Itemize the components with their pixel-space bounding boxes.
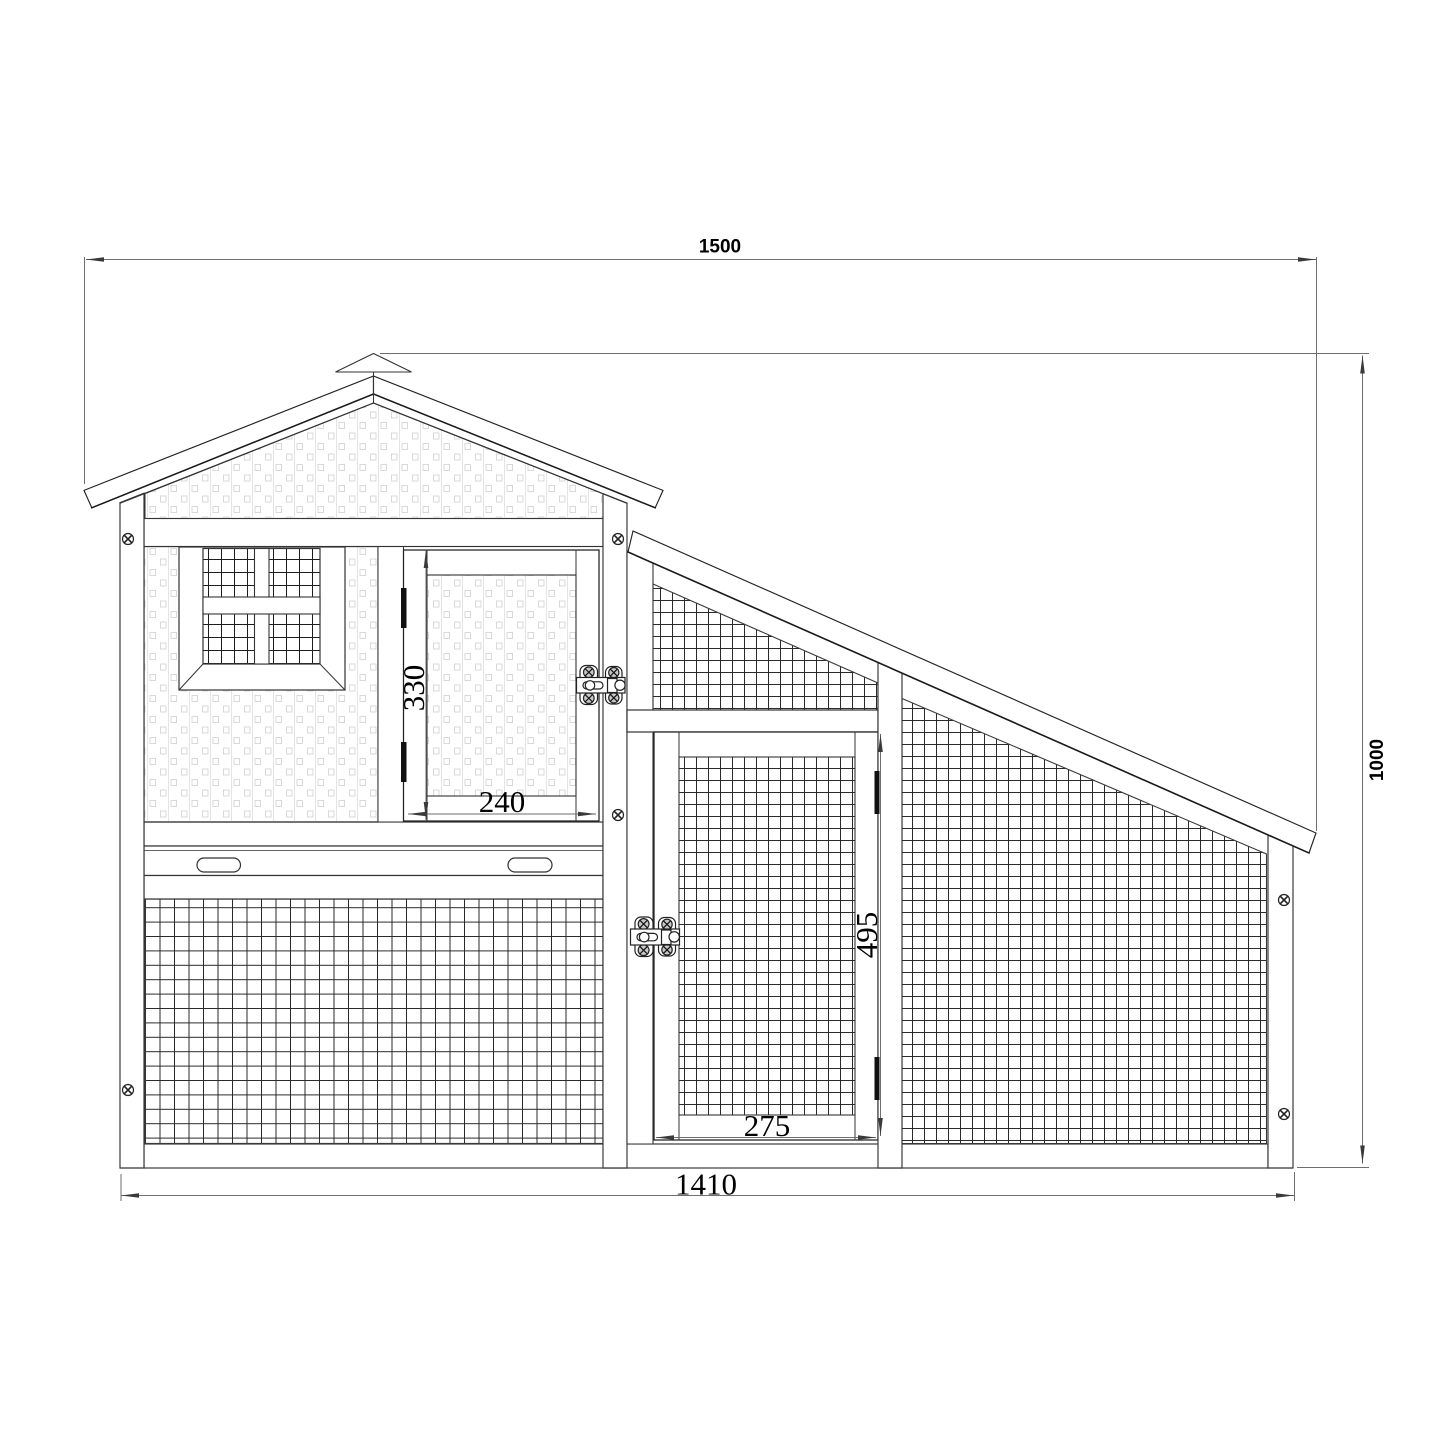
- svg-text:495: 495: [849, 912, 884, 959]
- svg-text:275: 275: [744, 1108, 791, 1143]
- svg-text:1410: 1410: [675, 1167, 737, 1202]
- svg-text:240: 240: [479, 784, 526, 819]
- svg-text:1000: 1000: [1367, 739, 1388, 781]
- svg-text:330: 330: [396, 665, 431, 712]
- svg-text:1500: 1500: [699, 237, 741, 258]
